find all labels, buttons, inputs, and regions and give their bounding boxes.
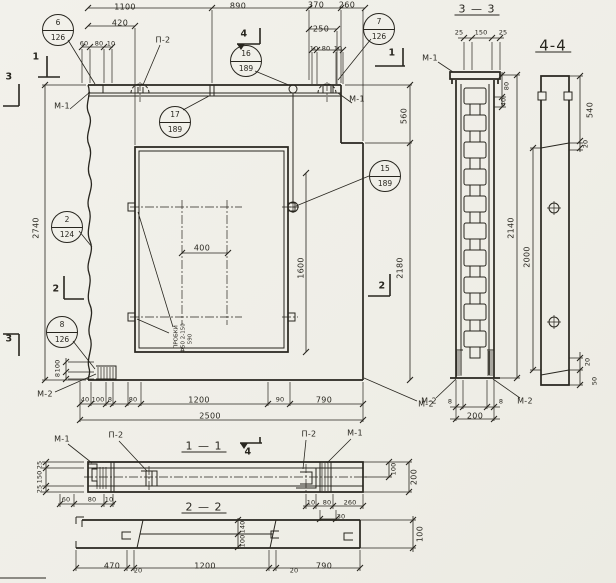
section-mark-2: 2 (53, 285, 60, 294)
embed-label-m1: М-1 (349, 95, 365, 104)
dim-label: 40 (500, 98, 509, 106)
callout-8: 8 126 (46, 316, 78, 348)
callout-number: 8 (47, 317, 77, 333)
dim-label: 140 (239, 521, 248, 534)
dim-label: 60 (80, 40, 88, 49)
dim-label: 30 (337, 513, 345, 522)
dim-label: 80 (503, 82, 512, 90)
dim-label: 8 (499, 398, 503, 407)
dim-label: 60 (62, 496, 70, 505)
dim-label: 8 (108, 396, 112, 405)
callout-number: 7 (364, 14, 394, 30)
crosshairs (287, 201, 561, 329)
callout-7: 7 126 (363, 13, 395, 45)
opening-note: 590 (187, 334, 196, 345)
callout-sheet: 189 (370, 177, 400, 192)
callout-number: 16 (231, 46, 261, 62)
embed-label-m1: М-1 (347, 429, 363, 438)
section-mark-3: 3 (6, 73, 13, 82)
embed-label-m1: М-1 (422, 54, 438, 63)
embed-label-m2: М-2 (517, 397, 533, 406)
dim-label: 1200 (188, 396, 210, 405)
dim-label: 100 (239, 535, 248, 548)
hatch-lines (97, 351, 492, 491)
section-mark-1: 1 (33, 53, 40, 62)
dim-label: 150 (36, 471, 45, 484)
dim-label: 2000 (523, 246, 532, 268)
dim-label: 20 (582, 140, 591, 148)
callout-number: 6 (43, 15, 73, 31)
dim-label: 890 (230, 2, 246, 11)
dim-label: 200 (467, 412, 483, 421)
dim-label: 1600 (297, 257, 306, 279)
dim-label: 1100 (114, 3, 136, 12)
dim-label: 10 (310, 45, 318, 54)
hollow-core-cells (464, 88, 486, 358)
callout-sheet: 189 (160, 123, 190, 138)
dim-label: 10 (107, 40, 115, 49)
callout-16: 16 189 (230, 45, 262, 77)
dim-label: 2180 (396, 257, 405, 279)
dim-label: 80 (323, 499, 331, 508)
callout-sheet: 126 (47, 333, 77, 348)
dim-label: 150 (475, 29, 488, 38)
callout-2: 2 124 (51, 211, 83, 243)
dim-label: 25 (455, 29, 463, 38)
dim-label: 420 (112, 19, 128, 28)
section-mark-2: 2 (379, 282, 386, 291)
dim-label: 80 (129, 396, 137, 405)
embed-label-p2: П-2 (156, 36, 171, 45)
section-title-4-4: 4-4 (535, 42, 571, 53)
dim-label: 20 (290, 567, 298, 576)
dim-label: 370 (308, 1, 324, 10)
embed-label-m1: М-1 (54, 435, 70, 444)
callout-number: 15 (370, 161, 400, 177)
callout-sheet: 126 (43, 31, 73, 46)
dim-label: 10 (105, 496, 113, 505)
callout-17: 17 189 (159, 106, 191, 138)
dim-label: 25 (36, 485, 45, 493)
engineering-drawing-sheet: 1100 890 370 260 420 250 60 80 10 10 80 … (0, 0, 616, 583)
callout-15: 15 189 (369, 160, 401, 192)
axis-lines (84, 82, 368, 492)
dim-label: 25 (36, 461, 45, 469)
section-title-2-2: 2 — 2 (182, 503, 227, 514)
dim-label: 470 (104, 562, 120, 571)
notches (538, 92, 572, 100)
dim-label: 90 (276, 396, 284, 405)
dim-label: 1200 (194, 562, 216, 571)
dim-label: 540 (586, 102, 595, 118)
callout-sheet: 126 (364, 30, 394, 45)
dim-label: 200 (410, 469, 419, 485)
dim-label: 40 (81, 396, 89, 405)
embed-label-m1: М-1 (54, 102, 70, 111)
section-mark-4: 4 (241, 30, 248, 39)
section-mark-4: 4 (245, 448, 252, 457)
embed-label-p2: П-2 (109, 431, 124, 440)
dim-label: 20 (584, 358, 593, 366)
dim-label: 790 (316, 562, 332, 571)
callout-6: 6 126 (42, 14, 74, 46)
dim-label: 100 (416, 526, 425, 542)
section-mark-1: 1 (389, 49, 396, 58)
section-mark-arrows (237, 44, 248, 449)
dim-label: 80 (322, 45, 330, 54)
dim-label: 790 (316, 396, 332, 405)
dim-label: 260 (339, 1, 355, 10)
dim-label: 400 (194, 244, 210, 253)
dim-label: 80 (95, 40, 103, 49)
dim-label: 50 (591, 377, 600, 385)
dim-label: 25 (499, 29, 507, 38)
callout-number: 17 (160, 107, 190, 123)
dim-label: 260 (344, 499, 357, 508)
section-title-1-1: 1 — 1 (182, 442, 227, 453)
section-title-3-3: 3 — 3 (455, 5, 500, 16)
embed-label-p2: П-2 (302, 430, 317, 439)
dim-label: 8 (448, 398, 452, 407)
callout-sheet: 124 (52, 228, 82, 243)
embed-label-m2: М-2 (421, 397, 437, 406)
dim-label: 10 (334, 45, 342, 54)
callout-number: 2 (52, 212, 82, 228)
embed-label-m2: М-2 (37, 390, 53, 399)
dim-label: 2500 (199, 412, 221, 421)
dim-label: 100 (390, 463, 399, 476)
dim-label: 250 (313, 25, 329, 34)
embed-washer (289, 85, 297, 93)
dim-label: 80 (88, 496, 96, 505)
dim-label: 10 (307, 499, 315, 508)
dim-label: 560 (400, 108, 409, 124)
section-mark-3: 3 (6, 335, 13, 344)
dim-label: 20 (134, 567, 142, 576)
dim-label: 8 (54, 373, 63, 377)
dim-label: 100 (92, 396, 105, 405)
dim-label: 2140 (507, 217, 516, 239)
dim-label: 100 (54, 360, 63, 373)
dim-label: 2740 (32, 217, 41, 239)
panel-outlines (76, 72, 569, 548)
callout-sheet: 189 (231, 62, 261, 77)
wavy-edge (87, 85, 91, 380)
